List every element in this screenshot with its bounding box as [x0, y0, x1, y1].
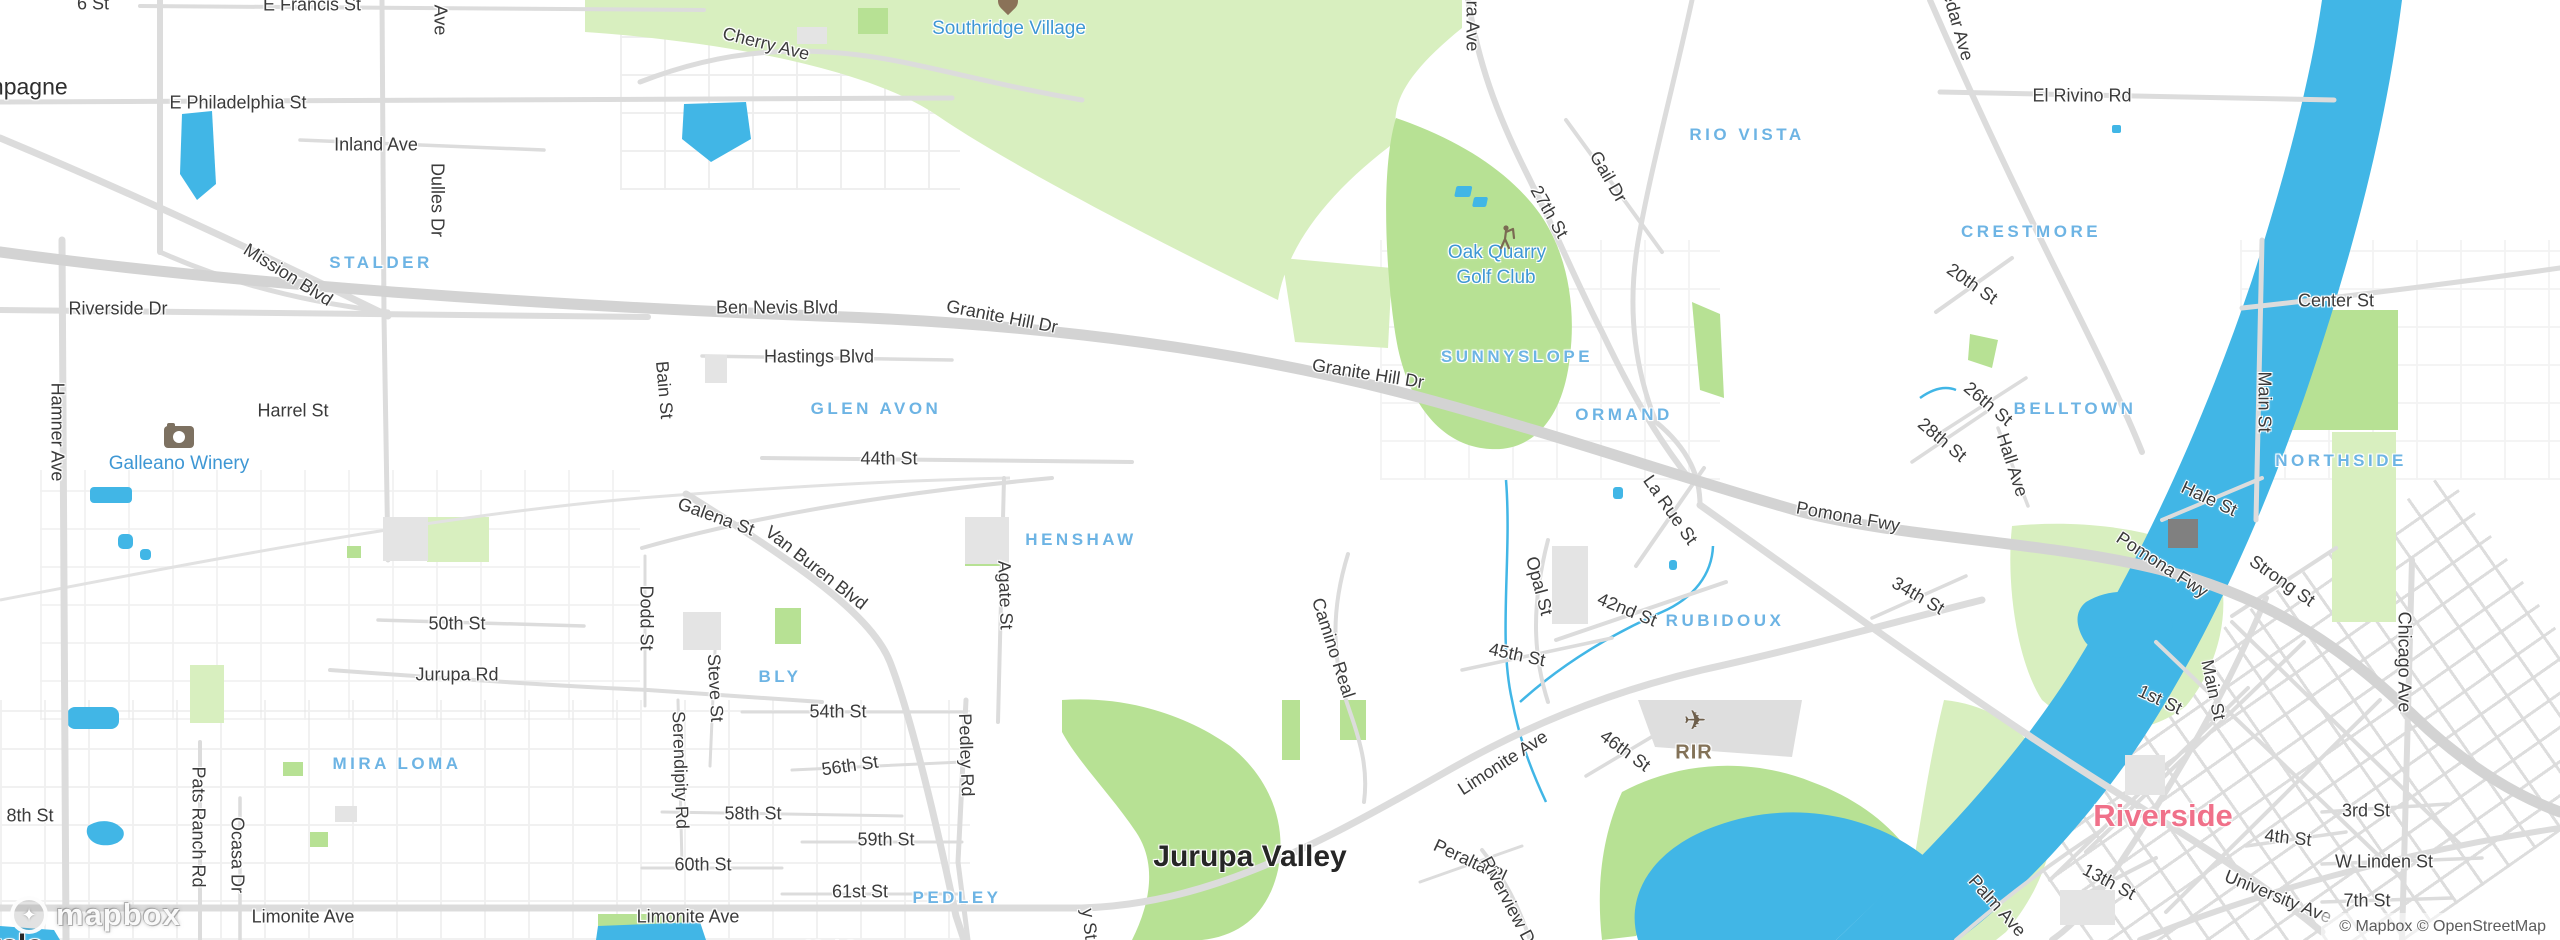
attribution-bar: © Mapbox © OpenStreetMap	[2321, 913, 2560, 940]
map-label-street: 27th St	[1526, 182, 1573, 242]
map-label-street: 50th St	[428, 614, 485, 635]
map-label-street: 20th St	[1943, 259, 2002, 309]
map-label-street: Agate St	[993, 560, 1016, 630]
map-label-street: Steve St	[703, 653, 728, 722]
map-label-street: Pedley Rd	[954, 713, 978, 797]
map-label-neighborhood: SUNNYSLOPE	[1441, 347, 1593, 367]
map-label-street: 8th St	[6, 806, 53, 827]
map-label-street: Galena St	[675, 493, 757, 540]
map-label-street: Inland Ave	[334, 135, 418, 156]
map-label-street: E Francis St	[263, 0, 361, 16]
map-label-neighborhood: ORMAND	[1575, 405, 1673, 425]
map-label-street: 26th St	[1959, 378, 2016, 431]
map-label-street: Cedar Ave	[1934, 0, 1977, 63]
map-label-street: 7th St	[2343, 891, 2390, 912]
map-label-neighborhood: HENSHAW	[1025, 530, 1136, 550]
map-label-street: 6 St	[77, 0, 109, 15]
map-label-city-small: Champagne	[0, 74, 68, 101]
map-label-street: Ave	[430, 5, 451, 36]
map-label-neighborhood: CRESTMORE	[1961, 222, 2101, 242]
map-canvas[interactable]: 6 StE Francis StE Philadelphia StInland …	[0, 0, 2560, 940]
map-label-street: W Linden St	[2335, 852, 2433, 873]
map-label-street: El Rivino Rd	[2032, 86, 2131, 107]
map-label-street: Dulles Dr	[427, 163, 448, 237]
map-label-city: Jurupa Valley	[1153, 840, 1346, 874]
map-label-street: Serendipity Rd	[667, 711, 692, 830]
map-label-street: Opal St	[1521, 554, 1557, 617]
map-label-street: Cherry Ave	[720, 23, 811, 65]
map-label-poi: Galleano Winery	[109, 453, 249, 475]
map-label-neighborhood: BELLTOWN	[2014, 399, 2137, 419]
map-label-street: Ocasa Dr	[227, 817, 248, 893]
map-label-street: Gail Dr	[1585, 147, 1631, 206]
map-label-street: Harrel St	[257, 401, 328, 422]
map-label-street: 13th St	[2079, 859, 2139, 904]
map-label-poi: Southridge Village	[932, 18, 1086, 40]
map-label-street: 45th St	[1487, 639, 1547, 671]
map-label-street: Ben Nevis Blvd	[716, 298, 838, 319]
map-label-street: University Ave	[2221, 866, 2334, 928]
mapbox-wordmark: mapbox	[56, 897, 181, 933]
map-label-street: Main St	[2254, 371, 2275, 432]
attribution-mapbox-link[interactable]: © Mapbox	[2339, 918, 2412, 935]
mapbox-logo-icon: ✦	[10, 896, 48, 934]
map-label-neighborhood: RIO VISTA	[1689, 125, 1804, 145]
map-label-street: Hall Ave	[1992, 431, 2032, 500]
map-label-street: Hamner Ave	[47, 383, 68, 482]
map-label-street: Pats Ranch Rd	[188, 766, 209, 887]
map-label-street: 56th St	[820, 752, 879, 781]
map-label-street: Limonite Ave	[252, 907, 355, 928]
map-label-neighborhood: RUBIDOUX	[1666, 611, 1785, 631]
airplane-icon: ✈	[1684, 706, 1707, 737]
map-label-street: Dodd St	[636, 585, 657, 650]
map-label-neighborhood: STALDER	[329, 253, 433, 273]
map-label-street: 46th St	[1596, 726, 1654, 777]
map-label-street: Riverview Dr	[1476, 853, 1542, 940]
map-label-street: 42nd St	[1594, 589, 1659, 632]
map-label-street: 3rd St	[2342, 801, 2390, 822]
attribution-osm-link[interactable]: © OpenStreetMap	[2417, 918, 2546, 935]
map-label-street: 28th St	[1913, 414, 1970, 467]
map-label-street: Center St	[2298, 291, 2374, 312]
map-label-neighborhood: PEDLEY	[912, 888, 1001, 908]
map-label-city-accent: Riverside	[2093, 798, 2233, 834]
map-label-street: 60th St	[674, 855, 731, 876]
map-labels-layer: 6 StE Francis StE Philadelphia StInland …	[0, 0, 2560, 940]
map-label-street: Hale St	[2178, 477, 2240, 521]
map-label-street: Bain St	[651, 360, 677, 420]
map-label-street: Chicago Ave	[2394, 612, 2415, 713]
map-label-street: Palm Ave	[1964, 871, 2030, 940]
map-label-street: 61st St	[832, 882, 888, 903]
map-label-street: Strong St	[2245, 551, 2319, 611]
map-label-street: Camino Real	[1307, 595, 1359, 700]
map-label-street: 4th St	[2264, 825, 2313, 851]
map-label-street: Pomona Fwy	[2112, 528, 2212, 603]
camera-icon	[164, 426, 194, 448]
map-label-neighborhood: MIRA LOMA	[332, 754, 461, 774]
map-label-poi: Golf Club	[1456, 267, 1535, 289]
map-label-street: 1st St	[2135, 681, 2186, 719]
map-label-street: E Philadelphia St	[169, 93, 306, 114]
map-label-street: Pomona Fwy	[1794, 498, 1901, 537]
map-label-street: ra Ave	[1462, 1, 1483, 52]
map-label-street: Mission Blvd	[240, 239, 337, 310]
marker-pin-icon	[998, 0, 1018, 11]
map-label-street: 54th St	[809, 702, 866, 723]
mapbox-logo[interactable]: ✦ mapbox	[10, 896, 181, 934]
map-label-neighborhood: GLEN AVON	[811, 399, 942, 419]
map-label-street: Van Buren Blvd	[761, 522, 871, 615]
map-label-neighborhood: BLY	[759, 667, 802, 687]
map-label-street: 44th St	[860, 449, 917, 470]
map-label-street: 59th St	[857, 830, 914, 851]
map-label-street: La Rue St	[1638, 471, 1701, 549]
map-label-airport-code: RIR	[1675, 742, 1712, 765]
map-label-street: 58th St	[724, 804, 781, 825]
map-label-street: Limonite Ave	[1454, 726, 1552, 800]
map-label-street: Granite Hill Dr	[1311, 355, 1426, 393]
map-label-street: Granite Hill Dr	[945, 296, 1060, 338]
map-label-neighborhood: NORTHSIDE	[2275, 451, 2407, 471]
map-label-street: Hastings Blvd	[764, 347, 874, 368]
map-label-street: Main St	[2196, 658, 2229, 722]
map-label-street: Limonite Ave	[637, 907, 740, 928]
map-label-street: 34th St	[1888, 573, 1948, 620]
map-label-street: y St	[1077, 907, 1102, 940]
map-label-street: Riverside Dr	[68, 299, 167, 320]
map-label-street: Jurupa Rd	[415, 665, 498, 686]
